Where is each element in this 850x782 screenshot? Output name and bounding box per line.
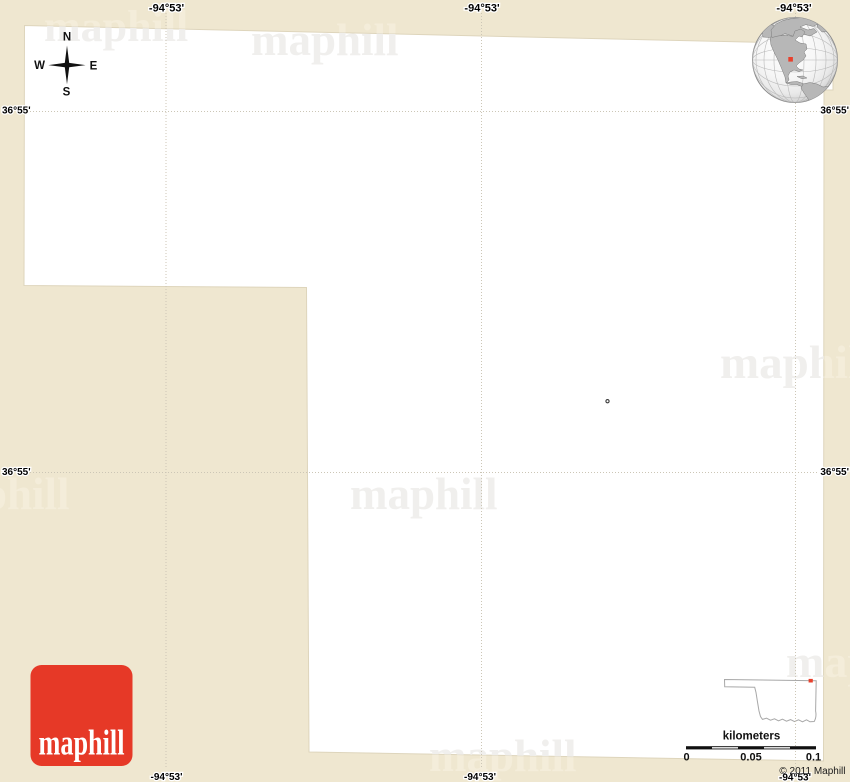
svg-text:maphill: maphill [350, 469, 498, 519]
svg-text:36°55': 36°55' [2, 106, 31, 117]
svg-text:S: S [63, 87, 71, 99]
svg-text:36°55': 36°55' [820, 106, 849, 117]
svg-text:-94°53': -94°53' [464, 772, 496, 782]
svg-text:W: W [34, 60, 45, 72]
svg-text:E: E [90, 61, 98, 73]
svg-text:36°55': 36°55' [2, 467, 31, 478]
svg-text:0.05: 0.05 [740, 752, 761, 764]
svg-text:kilometers: kilometers [723, 731, 781, 743]
svg-text:0: 0 [683, 752, 689, 764]
svg-text:-94°53': -94°53' [149, 3, 185, 15]
svg-text:0.1: 0.1 [806, 752, 821, 764]
svg-text:N: N [63, 32, 71, 44]
svg-text:-94°53': -94°53' [776, 3, 812, 15]
svg-text:-94°53': -94°53' [151, 772, 183, 782]
svg-text:-94°53': -94°53' [464, 3, 500, 15]
svg-text:maphill: maphill [39, 723, 125, 763]
svg-text:36°55': 36°55' [820, 467, 849, 478]
svg-text:© 2011 Maphill: © 2011 Maphill [779, 766, 845, 777]
